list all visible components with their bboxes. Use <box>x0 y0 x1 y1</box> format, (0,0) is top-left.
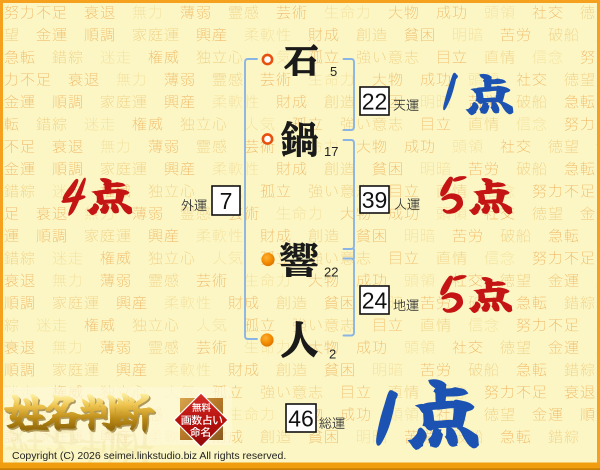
svg-text:46: 46 <box>288 405 314 431</box>
svg-text:22: 22 <box>362 88 388 114</box>
svg-text:17: 17 <box>324 144 338 159</box>
svg-text:2: 2 <box>329 347 336 362</box>
svg-text:39: 39 <box>362 187 388 213</box>
svg-text:Copyright (C) 2026 seimei.link: Copyright (C) 2026 seimei.linkstudio.biz… <box>12 450 286 462</box>
svg-text:5: 5 <box>330 64 337 79</box>
svg-text:22: 22 <box>324 265 338 280</box>
svg-text:7: 7 <box>220 188 233 214</box>
svg-text:24: 24 <box>362 287 388 313</box>
